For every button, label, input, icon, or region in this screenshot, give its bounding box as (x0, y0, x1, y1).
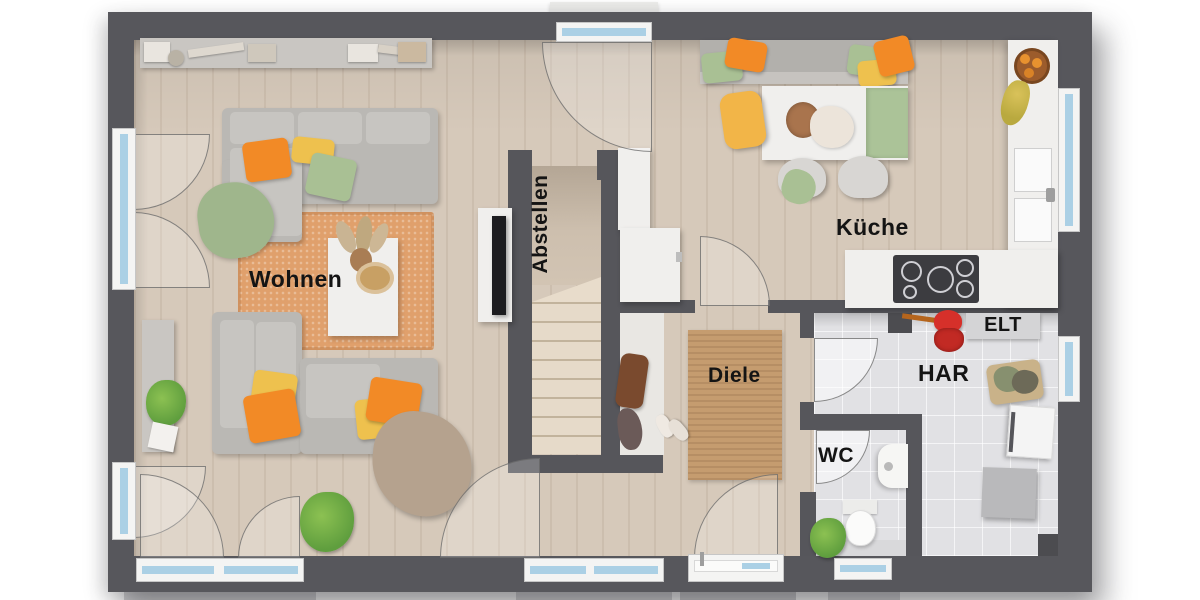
gold-tray (356, 262, 394, 294)
wall-wc-right (906, 414, 922, 556)
front-door-glass (742, 563, 770, 569)
decor-ring (168, 50, 184, 66)
stair-tread (532, 397, 601, 416)
stair-tread (532, 435, 601, 454)
magazine (148, 422, 179, 453)
stair-tread (532, 359, 601, 378)
sofa-back-cushion (366, 112, 430, 144)
hall-cabinet (620, 228, 680, 302)
books (348, 44, 378, 62)
fruit (1032, 58, 1042, 68)
sink-basin (1014, 148, 1052, 192)
window-top-glass (562, 28, 646, 36)
flower-bouquet (810, 106, 854, 148)
burner (903, 285, 917, 299)
tv-screen (492, 216, 506, 315)
burner (901, 261, 922, 282)
pillow-orange (242, 388, 302, 444)
burner (956, 259, 974, 277)
wc-sink (878, 444, 908, 488)
floorplan-canvas: ELT Wohnen Abstellen Küche Diele (0, 0, 1200, 600)
wall-diele-har-upper (800, 313, 814, 338)
wall-diele-har-lower (800, 402, 814, 414)
front-door-handle (700, 552, 704, 566)
stair-tread (532, 321, 601, 340)
books (398, 42, 426, 62)
wall-wc-top (800, 414, 922, 430)
window-bottom-wc-glass (840, 565, 886, 572)
books (248, 44, 276, 62)
table-runner-green (866, 88, 908, 158)
stair-tread (532, 378, 601, 397)
window-left-lower-glass (120, 468, 128, 534)
hallway-rug (688, 330, 782, 480)
room-label-wohnen: Wohnen (249, 266, 342, 293)
faucet (1046, 188, 1055, 202)
window-mullion (214, 560, 224, 580)
window-right-har-glass (1065, 342, 1073, 396)
window-left-upper-glass (120, 134, 128, 284)
burner (956, 280, 974, 298)
storage-box (981, 467, 1037, 519)
window-mullion (586, 560, 594, 580)
room-label-elt: ELT (972, 314, 1034, 337)
sink-basin (1014, 198, 1052, 242)
books (144, 42, 170, 62)
fruit (1020, 54, 1030, 64)
sink-drain (884, 462, 893, 471)
stair-tread (532, 302, 601, 321)
cabinet-handle (676, 252, 682, 262)
room-label-abstellen: Abstellen (529, 164, 553, 284)
red-bucket (934, 328, 964, 352)
room-label-kueche: Küche (836, 214, 909, 241)
room-label-diele: Diele (708, 364, 761, 388)
pillow-orange (241, 137, 292, 183)
room-label-wc: WC (818, 444, 854, 468)
tall-cabinet (618, 148, 650, 230)
burner (927, 266, 954, 293)
stair-tread (532, 340, 601, 359)
window-right-kitchen-glass (1065, 94, 1073, 226)
chair-gray (838, 156, 888, 198)
stair-tread (532, 416, 601, 435)
corner-shaft (1038, 534, 1058, 556)
room-label-har: HAR (918, 360, 969, 387)
toilet-bowl (845, 510, 876, 546)
chair-yellow (718, 89, 767, 150)
fruit (1024, 68, 1034, 78)
window-bottom-diele-glass (530, 566, 658, 574)
staircase (532, 302, 601, 455)
